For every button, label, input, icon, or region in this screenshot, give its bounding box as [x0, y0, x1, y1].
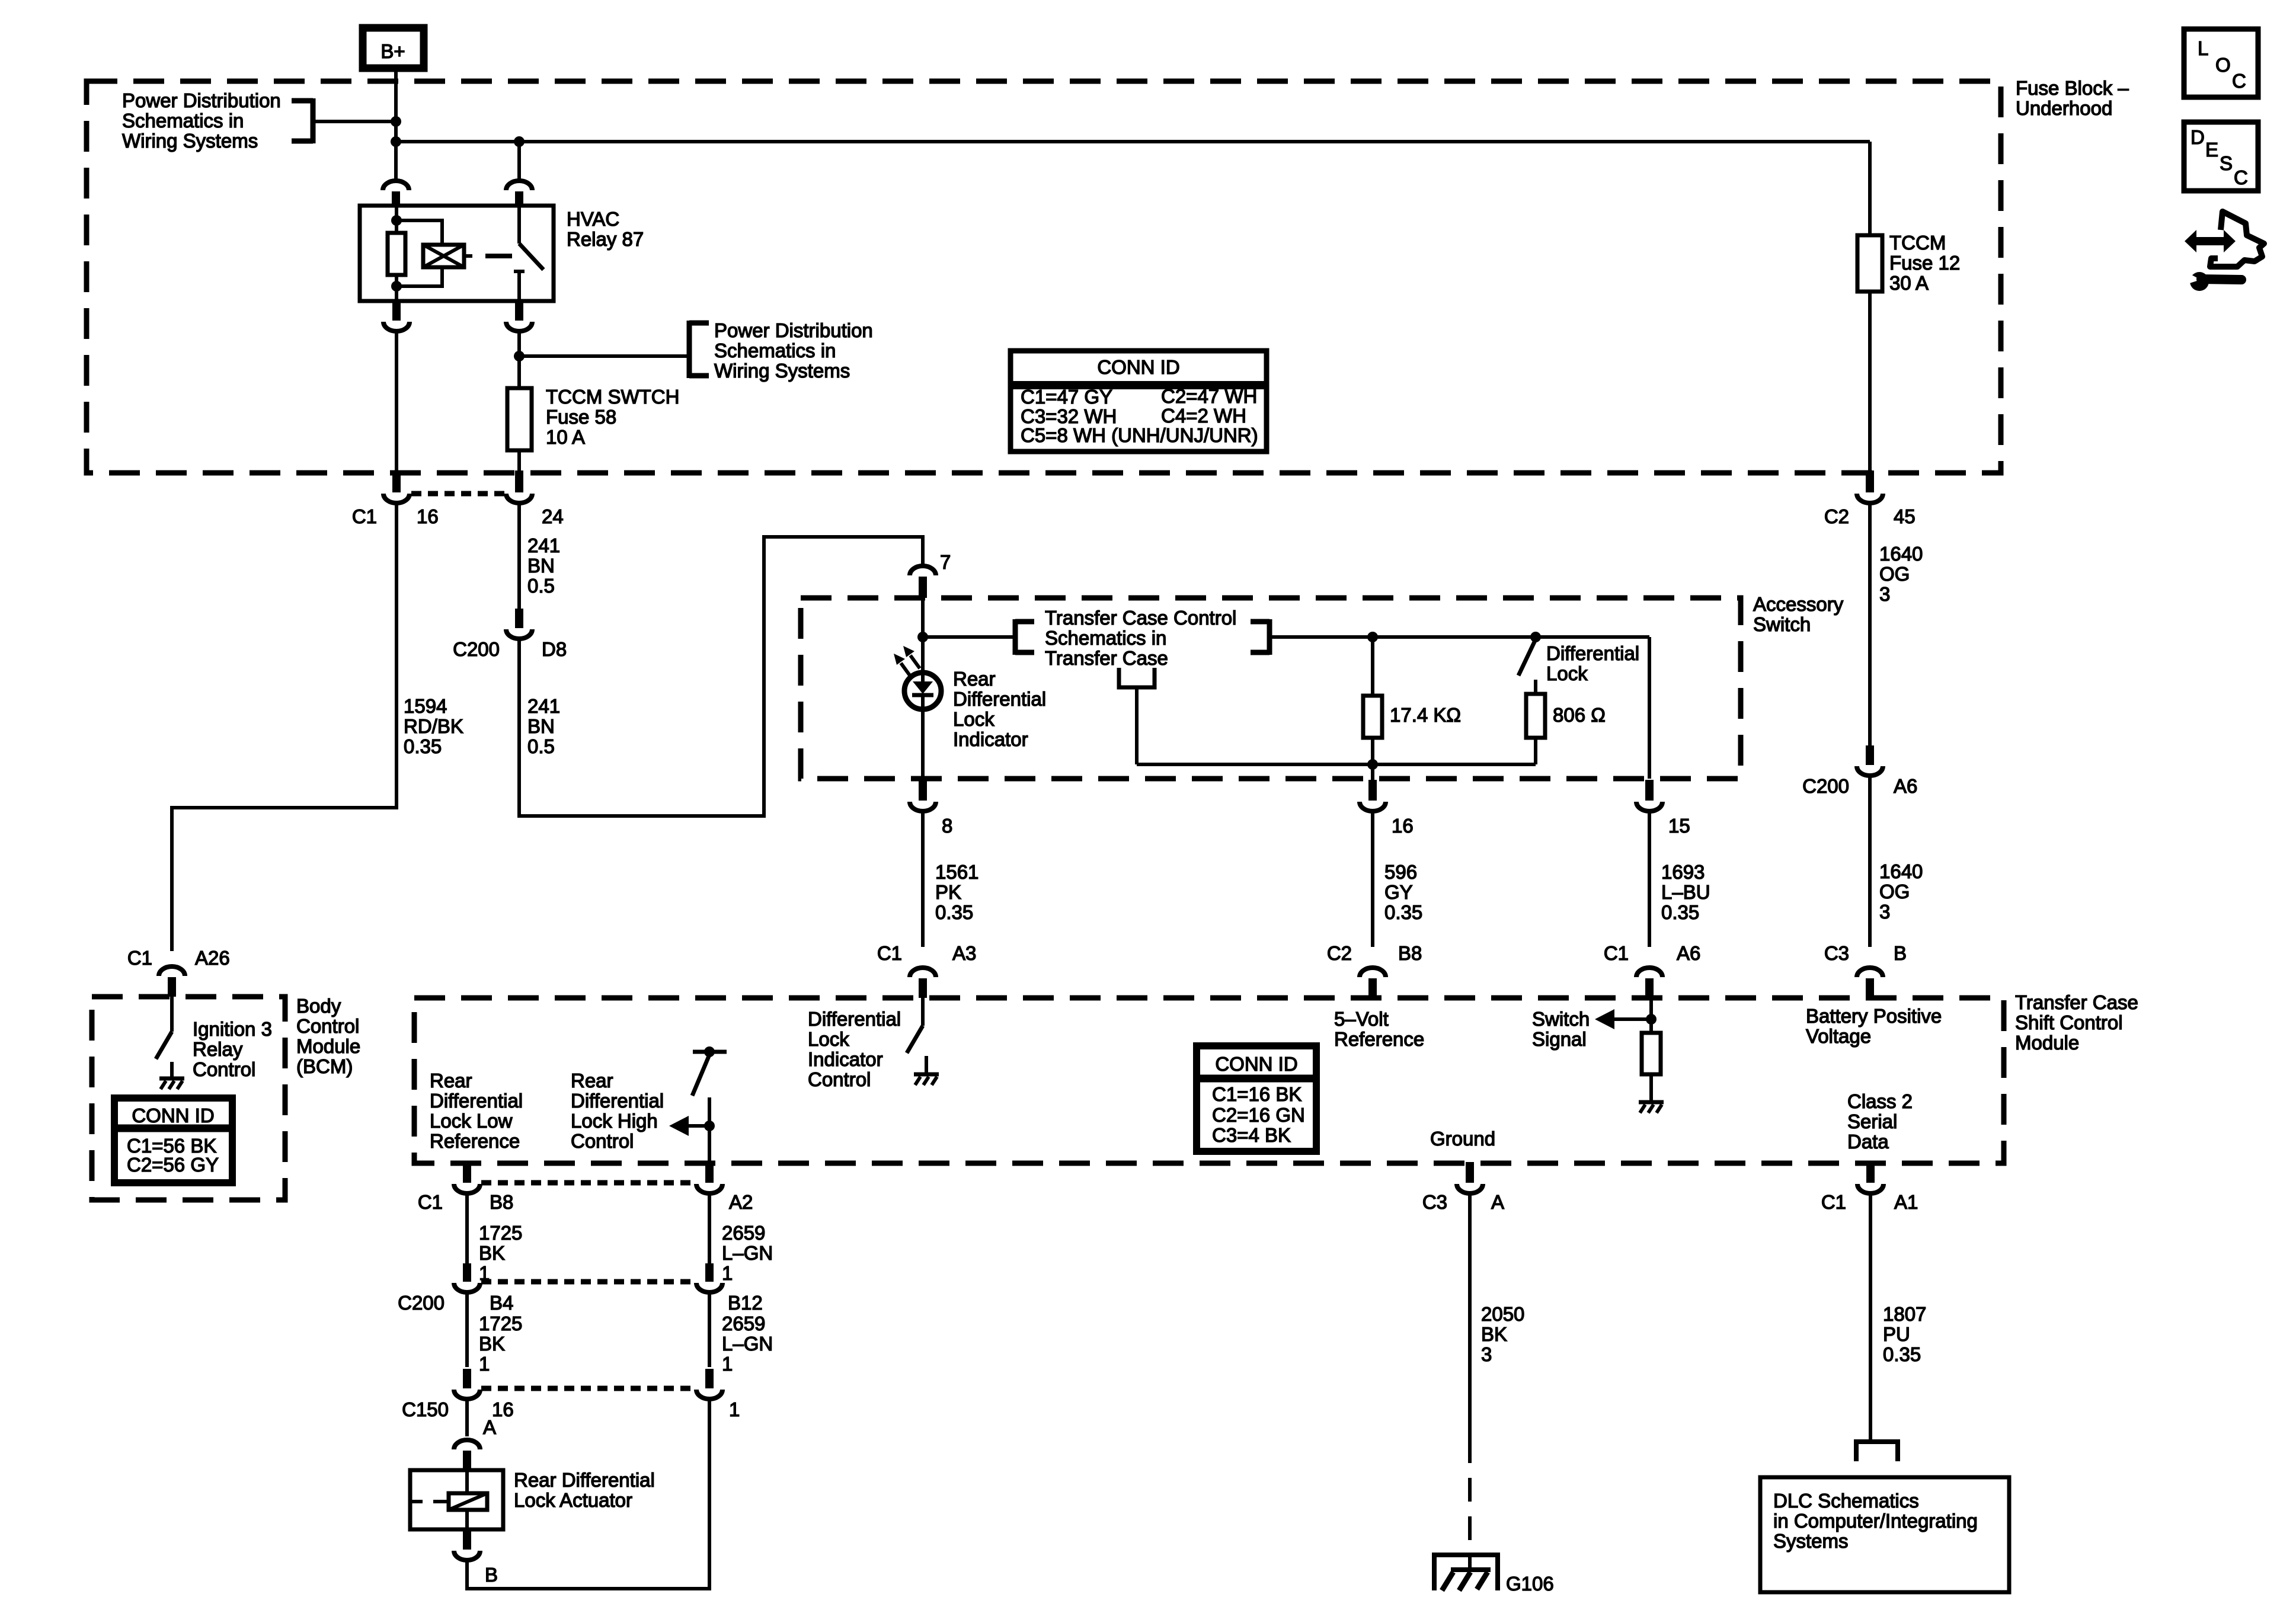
svg-text:BK: BK	[479, 1333, 505, 1355]
svg-text:Lock Actuator: Lock Actuator	[514, 1489, 632, 1511]
svg-text:Ignition 3: Ignition 3	[193, 1018, 272, 1040]
svg-text:Lock: Lock	[808, 1028, 849, 1050]
svg-text:1693: 1693	[1661, 861, 1705, 883]
svg-text:241: 241	[527, 695, 560, 717]
svg-text:Schematics in: Schematics in	[122, 110, 244, 132]
svg-text:16: 16	[417, 505, 439, 527]
svg-text:A1: A1	[1894, 1191, 1918, 1213]
svg-text:B8: B8	[1398, 942, 1422, 964]
svg-text:A: A	[483, 1416, 496, 1438]
svg-text:L: L	[2198, 37, 2208, 59]
svg-text:C2: C2	[1824, 505, 1849, 527]
svg-text:B8: B8	[490, 1191, 513, 1213]
svg-text:1640: 1640	[1879, 543, 1923, 565]
svg-text:Reference: Reference	[430, 1130, 520, 1152]
svg-text:1561: 1561	[935, 861, 978, 883]
svg-text:Differential: Differential	[808, 1008, 901, 1030]
svg-text:B4: B4	[490, 1292, 513, 1314]
svg-text:0.35: 0.35	[1661, 901, 1699, 923]
svg-text:Relay 87: Relay 87	[567, 228, 644, 250]
svg-text:BK: BK	[1481, 1323, 1507, 1345]
svg-text:0.35: 0.35	[1384, 901, 1422, 923]
svg-text:RD/BK: RD/BK	[404, 715, 463, 737]
svg-text:O: O	[2215, 54, 2231, 76]
svg-text:CONN ID: CONN ID	[1215, 1053, 1297, 1075]
svg-text:C3: C3	[1422, 1191, 1447, 1213]
svg-text:C1: C1	[1821, 1191, 1846, 1213]
svg-text:Lock Low: Lock Low	[430, 1110, 513, 1132]
svg-text:BN: BN	[527, 715, 555, 737]
svg-text:C2=56 GY: C2=56 GY	[127, 1154, 219, 1176]
svg-text:C3: C3	[1824, 942, 1849, 964]
svg-text:G106: G106	[1506, 1573, 1554, 1595]
svg-text:Fuse 58: Fuse 58	[546, 406, 616, 428]
svg-text:L–BU: L–BU	[1661, 881, 1710, 903]
svg-text:Control: Control	[193, 1058, 255, 1080]
svg-text:15: 15	[1668, 815, 1690, 837]
svg-text:17.4 KΩ: 17.4 KΩ	[1390, 704, 1461, 726]
svg-text:Class 2: Class 2	[1847, 1090, 1913, 1112]
svg-text:Signal: Signal	[1532, 1028, 1587, 1050]
svg-text:TCCM SWTCH: TCCM SWTCH	[546, 386, 679, 408]
svg-text:2659: 2659	[722, 1222, 765, 1244]
svg-text:B+: B+	[380, 40, 405, 62]
svg-text:Data: Data	[1847, 1131, 1889, 1153]
svg-text:10 A: 10 A	[546, 426, 585, 448]
svg-text:B12: B12	[728, 1292, 763, 1314]
svg-text:3: 3	[1481, 1343, 1492, 1365]
svg-text:OG: OG	[1879, 563, 1910, 585]
svg-text:GY: GY	[1384, 881, 1413, 903]
svg-text:Differential: Differential	[1546, 642, 1639, 664]
svg-text:C1=16 BK: C1=16 BK	[1212, 1083, 1302, 1105]
svg-text:Module: Module	[296, 1035, 360, 1057]
svg-text:1: 1	[729, 1398, 740, 1420]
svg-text:Differential: Differential	[953, 688, 1046, 710]
svg-text:E: E	[2205, 139, 2218, 161]
svg-text:2050: 2050	[1481, 1303, 1524, 1325]
svg-text:Transfer Case Control: Transfer Case Control	[1045, 607, 1236, 629]
svg-text:A6: A6	[1677, 942, 1700, 964]
svg-text:C150: C150	[402, 1398, 449, 1420]
svg-text:1: 1	[722, 1262, 733, 1284]
svg-text:1725: 1725	[479, 1222, 522, 1244]
svg-text:45: 45	[1894, 505, 1916, 527]
svg-text:Voltage: Voltage	[1806, 1025, 1871, 1047]
svg-text:1: 1	[722, 1353, 733, 1375]
svg-text:Rear Differential: Rear Differential	[514, 1469, 655, 1491]
svg-text:Reference: Reference	[1334, 1028, 1424, 1050]
svg-text:1807: 1807	[1883, 1303, 1926, 1325]
svg-text:24: 24	[542, 505, 564, 527]
svg-text:TCCM: TCCM	[1889, 232, 1946, 254]
svg-text:(BCM): (BCM)	[296, 1055, 353, 1077]
svg-text:C1: C1	[418, 1191, 443, 1213]
svg-text:Control: Control	[808, 1068, 871, 1090]
svg-text:596: 596	[1384, 861, 1417, 883]
svg-text:C2=47 WH: C2=47 WH	[1161, 385, 1257, 407]
svg-text:CONN ID: CONN ID	[1097, 356, 1179, 378]
svg-text:C4=2 WH: C4=2 WH	[1161, 405, 1246, 427]
svg-text:C200: C200	[398, 1292, 445, 1314]
svg-text:Rear: Rear	[571, 1070, 613, 1092]
svg-text:B: B	[485, 1564, 498, 1586]
svg-text:3: 3	[1879, 901, 1890, 923]
svg-text:1640: 1640	[1879, 860, 1923, 882]
svg-text:BN: BN	[527, 555, 555, 577]
svg-text:1: 1	[479, 1353, 490, 1375]
svg-text:C1: C1	[877, 942, 902, 964]
svg-text:CONN ID: CONN ID	[132, 1105, 214, 1126]
svg-text:L–GN: L–GN	[722, 1333, 773, 1355]
svg-text:Battery Positive: Battery Positive	[1806, 1005, 1942, 1027]
svg-text:Indicator: Indicator	[808, 1048, 883, 1070]
svg-text:Module: Module	[2015, 1032, 2079, 1054]
svg-text:Body: Body	[296, 995, 341, 1017]
svg-text:Power Distribution: Power Distribution	[122, 89, 281, 111]
svg-text:C5=8 WH (UNH/UNJ/UNR): C5=8 WH (UNH/UNJ/UNR)	[1021, 424, 1258, 446]
svg-text:C: C	[2232, 70, 2246, 92]
svg-text:Switch: Switch	[1532, 1008, 1590, 1030]
svg-text:L–GN: L–GN	[722, 1242, 773, 1264]
svg-text:Fuse Block –: Fuse Block –	[2016, 77, 2129, 99]
svg-text:0.5: 0.5	[527, 735, 555, 757]
svg-text:Serial: Serial	[1847, 1110, 1897, 1132]
svg-text:C2: C2	[1327, 942, 1352, 964]
svg-text:Indicator: Indicator	[953, 728, 1028, 750]
svg-text:Schematics in: Schematics in	[1045, 627, 1166, 649]
svg-text:Power Distribution: Power Distribution	[714, 319, 873, 341]
svg-text:Control: Control	[571, 1130, 634, 1152]
svg-text:C200: C200	[453, 638, 500, 660]
svg-text:HVAC: HVAC	[567, 208, 619, 230]
svg-text:C3=4 BK: C3=4 BK	[1212, 1124, 1291, 1146]
svg-text:A6: A6	[1894, 775, 1917, 797]
svg-text:2659: 2659	[722, 1313, 765, 1334]
svg-text:Differential: Differential	[571, 1090, 664, 1112]
svg-text:C2=16 GN: C2=16 GN	[1212, 1104, 1305, 1126]
svg-text:B: B	[1894, 942, 1907, 964]
svg-text:Accessory: Accessory	[1753, 593, 1844, 615]
svg-text:Transfer Case: Transfer Case	[1045, 647, 1168, 669]
svg-text:0.35: 0.35	[404, 735, 442, 757]
svg-text:Wiring Systems: Wiring Systems	[714, 360, 850, 382]
svg-text:806 Ω: 806 Ω	[1553, 704, 1606, 726]
svg-text:in Computer/Integrating: in Computer/Integrating	[1773, 1510, 1978, 1532]
svg-text:3: 3	[1879, 583, 1890, 605]
svg-text:C1: C1	[1604, 942, 1629, 964]
svg-text:30 A: 30 A	[1889, 272, 1929, 294]
svg-text:Differential: Differential	[430, 1090, 523, 1112]
svg-text:A26: A26	[195, 947, 230, 969]
svg-text:241: 241	[527, 534, 560, 556]
svg-text:16: 16	[1392, 815, 1414, 837]
svg-text:Underhood: Underhood	[2016, 97, 2112, 119]
svg-text:D: D	[2191, 126, 2205, 148]
svg-text:Switch: Switch	[1753, 613, 1811, 635]
svg-text:Shift Control: Shift Control	[2015, 1012, 2123, 1033]
svg-text:PK: PK	[935, 881, 961, 903]
svg-text:D8: D8	[542, 638, 567, 660]
svg-text:S: S	[2220, 152, 2233, 174]
svg-text:0.5: 0.5	[527, 575, 555, 597]
svg-text:A3: A3	[952, 942, 976, 964]
svg-text:0.35: 0.35	[1883, 1343, 1921, 1365]
svg-text:1594: 1594	[404, 695, 447, 717]
svg-text:C1=47 GY: C1=47 GY	[1021, 386, 1112, 408]
svg-text:C1: C1	[352, 505, 377, 527]
svg-text:DLC Schematics: DLC Schematics	[1773, 1490, 1919, 1512]
svg-text:0.35: 0.35	[935, 901, 973, 923]
svg-text:5–Volt: 5–Volt	[1334, 1008, 1389, 1030]
svg-text:A: A	[1491, 1191, 1504, 1213]
svg-text:Lock: Lock	[1546, 662, 1588, 684]
svg-text:A2: A2	[729, 1191, 753, 1213]
svg-text:C1: C1	[127, 947, 152, 969]
svg-text:Wiring Systems: Wiring Systems	[122, 130, 258, 152]
svg-text:C200: C200	[1802, 775, 1849, 797]
svg-text:BK: BK	[479, 1242, 505, 1264]
svg-text:Fuse 12: Fuse 12	[1889, 252, 1960, 274]
svg-text:Systems: Systems	[1773, 1530, 1849, 1552]
svg-text:Ground: Ground	[1430, 1128, 1495, 1150]
svg-text:Lock High: Lock High	[571, 1110, 658, 1132]
svg-text:1725: 1725	[479, 1313, 522, 1334]
svg-text:Schematics in: Schematics in	[714, 340, 836, 361]
svg-text:Control: Control	[296, 1015, 359, 1037]
svg-text:Rear: Rear	[953, 668, 996, 690]
svg-text:7: 7	[940, 551, 951, 573]
svg-text:Rear: Rear	[430, 1070, 472, 1092]
svg-text:Relay: Relay	[193, 1038, 243, 1060]
svg-text:PU: PU	[1883, 1323, 1910, 1345]
svg-text:C: C	[2234, 167, 2248, 188]
svg-text:Transfer Case: Transfer Case	[2015, 991, 2138, 1013]
svg-text:8: 8	[942, 815, 952, 837]
svg-text:OG: OG	[1879, 881, 1910, 902]
svg-text:Lock: Lock	[953, 708, 994, 730]
